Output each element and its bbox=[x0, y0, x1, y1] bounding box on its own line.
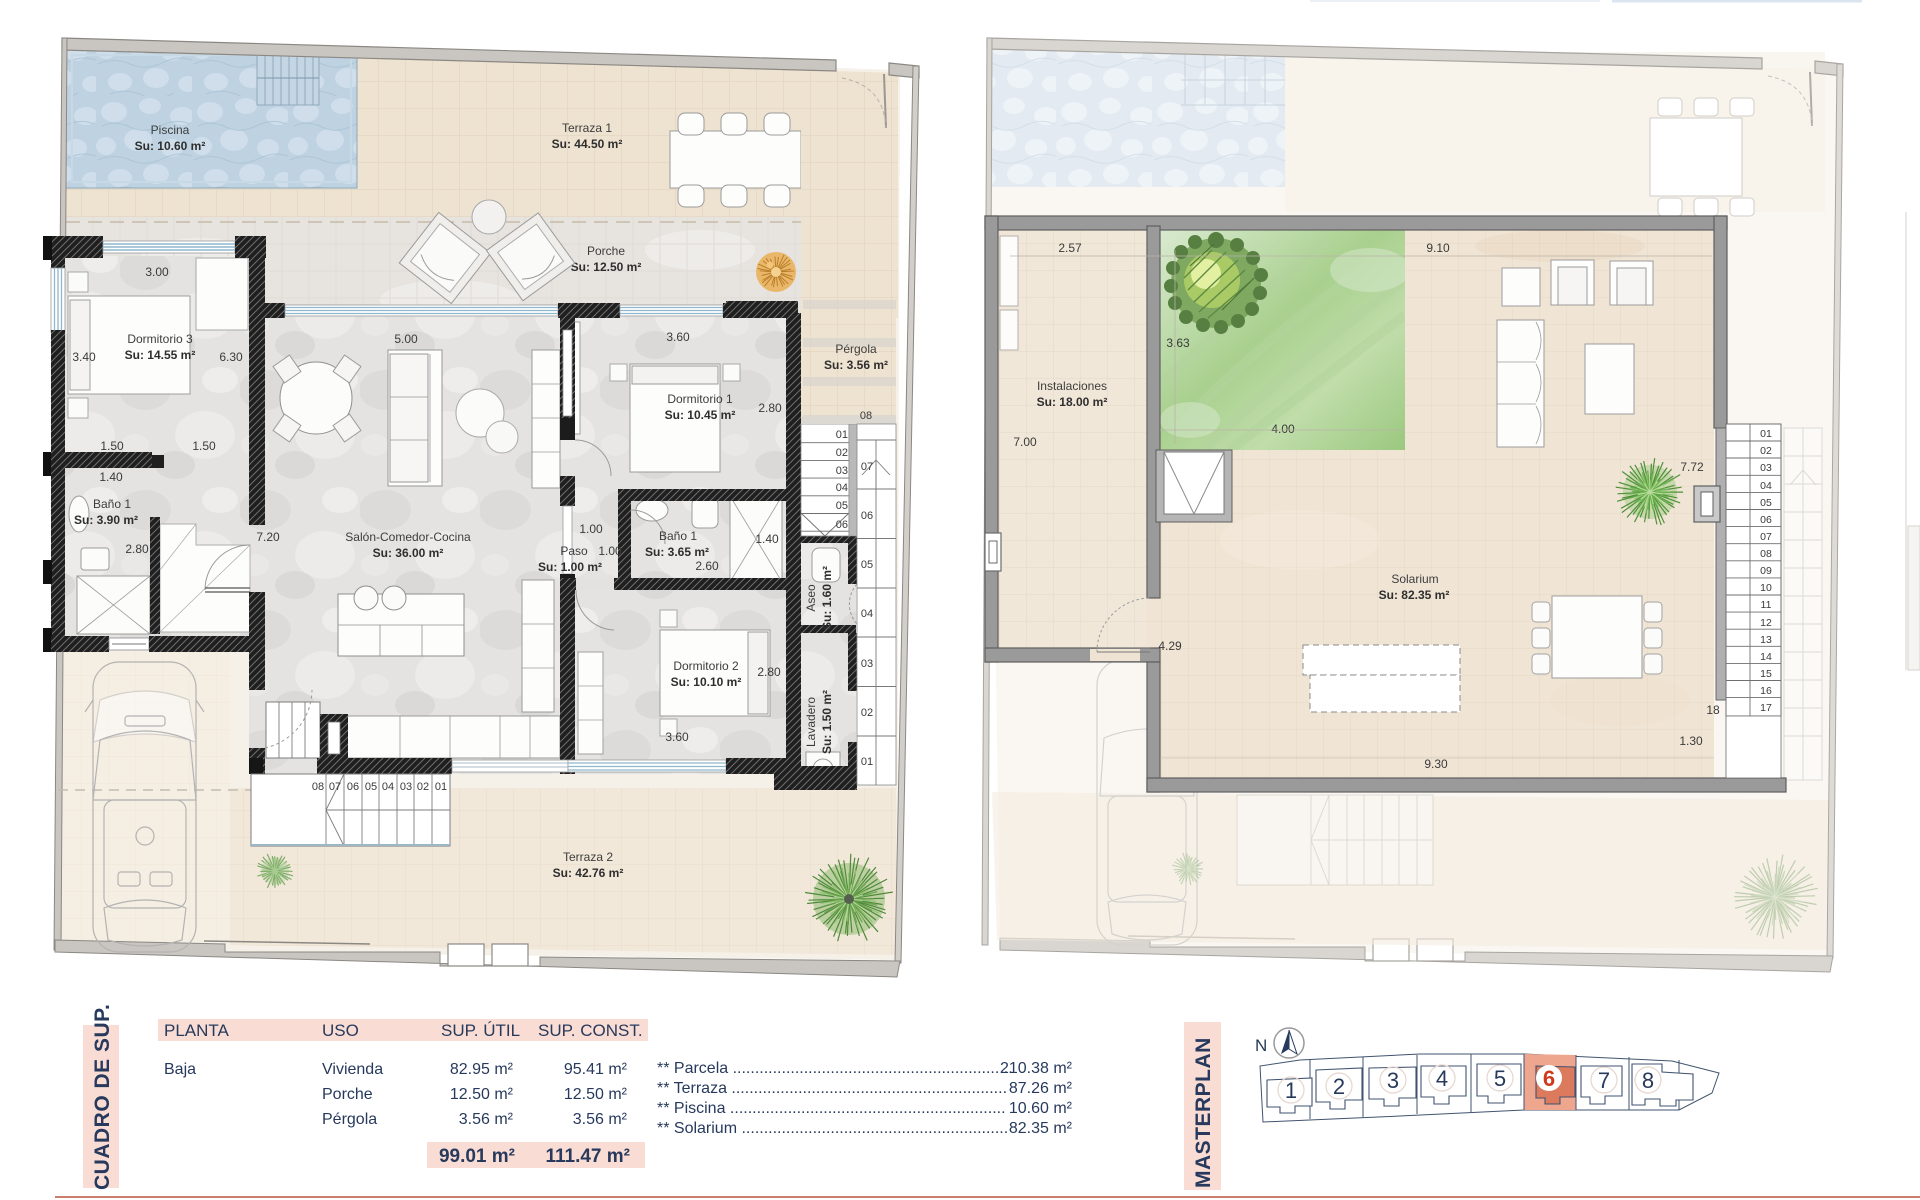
svg-text:82.35 m²: 82.35 m² bbox=[1009, 1120, 1073, 1137]
svg-text:Piscina: Piscina bbox=[151, 123, 190, 137]
svg-text:82.95 m²: 82.95 m² bbox=[450, 1061, 514, 1078]
svg-text:Salón-Comedor-Cocina: Salón-Comedor-Cocina bbox=[345, 530, 471, 544]
svg-text:1.00: 1.00 bbox=[579, 522, 603, 536]
svg-text:Pérgola: Pérgola bbox=[322, 1111, 377, 1128]
svg-text:1.00: 1.00 bbox=[598, 544, 622, 558]
svg-text:Su: 18.00 m²: Su: 18.00 m² bbox=[1037, 395, 1108, 409]
svg-text:Instalaciones: Instalaciones bbox=[1037, 379, 1107, 393]
svg-text:5: 5 bbox=[1494, 1066, 1506, 1091]
svg-text:3.60: 3.60 bbox=[666, 330, 690, 344]
svg-text:2: 2 bbox=[1333, 1074, 1345, 1099]
svg-text:7.20: 7.20 bbox=[256, 530, 280, 544]
svg-text:03: 03 bbox=[400, 781, 412, 793]
svg-text:** Solarium ..................: ** Solarium ............................… bbox=[657, 1120, 1008, 1137]
svg-text:Su: 44.50 m²: Su: 44.50 m² bbox=[552, 137, 623, 151]
svg-text:01: 01 bbox=[435, 781, 447, 793]
svg-text:3.00: 3.00 bbox=[145, 265, 169, 279]
svg-text:3.40: 3.40 bbox=[72, 350, 96, 364]
svg-text:2.80: 2.80 bbox=[757, 665, 781, 679]
svg-text:CUADRO DE SUP.: CUADRO DE SUP. bbox=[91, 1004, 114, 1190]
svg-text:05: 05 bbox=[861, 559, 873, 571]
svg-text:Terraza 1: Terraza 1 bbox=[562, 121, 612, 135]
svg-text:Su: 12.50 m²: Su: 12.50 m² bbox=[571, 260, 642, 274]
svg-text:Su: 1.60 m²: Su: 1.60 m² bbox=[820, 566, 834, 630]
svg-text:3.60: 3.60 bbox=[665, 730, 689, 744]
svg-text:Solarium: Solarium bbox=[1391, 572, 1438, 586]
svg-text:08: 08 bbox=[1760, 548, 1772, 560]
svg-text:04: 04 bbox=[861, 608, 873, 620]
svg-text:7.72: 7.72 bbox=[1680, 460, 1704, 474]
svg-text:1.40: 1.40 bbox=[99, 470, 123, 484]
svg-text:07: 07 bbox=[1760, 531, 1772, 543]
svg-text:Pérgola: Pérgola bbox=[835, 342, 877, 356]
svg-text:3.63: 3.63 bbox=[1166, 336, 1190, 350]
svg-text:Lavadero: Lavadero bbox=[804, 697, 818, 747]
svg-text:Terraza 2: Terraza 2 bbox=[563, 850, 613, 864]
svg-text:1.50: 1.50 bbox=[192, 439, 216, 453]
svg-text:** Parcela ...................: ** Parcela .............................… bbox=[657, 1060, 1013, 1077]
svg-text:Su: 42.76 m²: Su: 42.76 m² bbox=[553, 866, 624, 880]
svg-text:04: 04 bbox=[382, 781, 394, 793]
svg-text:USO: USO bbox=[322, 1021, 359, 1040]
svg-text:Su: 1.00 m²: Su: 1.00 m² bbox=[538, 560, 602, 574]
svg-text:4.29: 4.29 bbox=[1158, 639, 1182, 653]
svg-text:08: 08 bbox=[312, 781, 324, 793]
svg-text:06: 06 bbox=[861, 510, 873, 522]
svg-text:1.30: 1.30 bbox=[1679, 734, 1703, 748]
svg-text:04: 04 bbox=[1760, 480, 1772, 492]
svg-text:Su: 10.45 m²: Su: 10.45 m² bbox=[665, 408, 736, 422]
svg-text:05: 05 bbox=[836, 500, 848, 512]
svg-text:1.50: 1.50 bbox=[100, 439, 124, 453]
svg-text:02: 02 bbox=[861, 707, 873, 719]
svg-text:111.47 m²: 111.47 m² bbox=[545, 1146, 630, 1167]
svg-text:1: 1 bbox=[1285, 1078, 1297, 1103]
svg-text:Su: 10.60 m²: Su: 10.60 m² bbox=[135, 139, 206, 153]
svg-text:Dormitorio 3: Dormitorio 3 bbox=[127, 332, 193, 346]
svg-text:3: 3 bbox=[1387, 1068, 1399, 1093]
svg-text:03: 03 bbox=[861, 658, 873, 670]
svg-text:9.10: 9.10 bbox=[1426, 241, 1450, 255]
svg-text:87.26 m²: 87.26 m² bbox=[1009, 1080, 1073, 1097]
svg-text:7: 7 bbox=[1598, 1068, 1610, 1093]
svg-text:Su: 82.35 m²: Su: 82.35 m² bbox=[1379, 588, 1450, 602]
svg-text:Vivienda: Vivienda bbox=[322, 1061, 383, 1078]
svg-text:11: 11 bbox=[1761, 599, 1772, 611]
svg-text:Baño 1: Baño 1 bbox=[659, 529, 697, 543]
svg-text:01: 01 bbox=[861, 756, 873, 768]
svg-text:** Piscina ...................: ** Piscina .............................… bbox=[657, 1100, 1006, 1117]
svg-text:2.57: 2.57 bbox=[1058, 241, 1082, 255]
svg-text:5.00: 5.00 bbox=[394, 332, 418, 346]
svg-text:Porche: Porche bbox=[587, 244, 625, 258]
svg-text:06: 06 bbox=[836, 519, 848, 531]
svg-text:02: 02 bbox=[417, 781, 429, 793]
svg-text:2.60: 2.60 bbox=[695, 559, 719, 573]
svg-text:Su: 36.00 m²: Su: 36.00 m² bbox=[373, 546, 444, 560]
svg-text:SUP. ÚTIL: SUP. ÚTIL bbox=[441, 1021, 520, 1040]
svg-text:06: 06 bbox=[347, 781, 359, 793]
svg-text:05: 05 bbox=[1760, 497, 1772, 509]
svg-text:18: 18 bbox=[1706, 703, 1720, 717]
svg-text:08: 08 bbox=[860, 410, 872, 422]
svg-text:Baja: Baja bbox=[164, 1061, 196, 1078]
svg-text:Su: 10.10 m²: Su: 10.10 m² bbox=[671, 675, 742, 689]
svg-text:15: 15 bbox=[1760, 668, 1772, 680]
svg-text:03: 03 bbox=[836, 465, 848, 477]
svg-text:12.50 m²: 12.50 m² bbox=[564, 1086, 628, 1103]
svg-text:2.80: 2.80 bbox=[758, 401, 782, 415]
svg-text:3.56 m²: 3.56 m² bbox=[459, 1111, 514, 1128]
svg-text:Dormitorio 2: Dormitorio 2 bbox=[673, 659, 739, 673]
svg-text:13: 13 bbox=[1760, 634, 1772, 646]
svg-text:01: 01 bbox=[836, 429, 848, 441]
svg-text:17: 17 bbox=[1760, 702, 1772, 714]
svg-text:Aseo: Aseo bbox=[804, 584, 818, 612]
svg-text:Porche: Porche bbox=[322, 1086, 373, 1103]
svg-text:06: 06 bbox=[1760, 514, 1772, 526]
svg-text:Su: 3.65 m²: Su: 3.65 m² bbox=[645, 545, 709, 559]
svg-text:02: 02 bbox=[836, 447, 848, 459]
svg-text:6: 6 bbox=[1543, 1066, 1555, 1091]
svg-text:14: 14 bbox=[1760, 651, 1772, 663]
svg-text:Dormitorio 1: Dormitorio 1 bbox=[667, 392, 733, 406]
svg-text:MASTERPLAN: MASTERPLAN bbox=[1192, 1037, 1215, 1188]
svg-text:Su: 3.56 m²: Su: 3.56 m² bbox=[824, 358, 888, 372]
svg-text:01: 01 bbox=[1760, 428, 1772, 440]
svg-text:Su: 14.55 m²: Su: 14.55 m² bbox=[125, 348, 196, 362]
svg-text:3.56 m²: 3.56 m² bbox=[573, 1111, 628, 1128]
svg-text:N: N bbox=[1255, 1036, 1267, 1055]
svg-text:05: 05 bbox=[365, 781, 377, 793]
svg-text:07: 07 bbox=[861, 461, 873, 473]
svg-text:** Terraza ...................: ** Terraza .............................… bbox=[657, 1080, 1007, 1097]
svg-text:10.60 m²: 10.60 m² bbox=[1009, 1100, 1073, 1117]
svg-text:02: 02 bbox=[1760, 445, 1772, 457]
svg-text:4.00: 4.00 bbox=[1271, 422, 1295, 436]
svg-text:Su: 3.90 m²: Su: 3.90 m² bbox=[74, 513, 138, 527]
svg-text:03: 03 bbox=[1760, 462, 1772, 474]
svg-text:10: 10 bbox=[1760, 582, 1772, 594]
svg-text:210.38 m²: 210.38 m² bbox=[1000, 1060, 1073, 1077]
svg-text:1.40: 1.40 bbox=[755, 532, 779, 546]
svg-text:95.41 m²: 95.41 m² bbox=[564, 1061, 628, 1078]
svg-text:Paso: Paso bbox=[560, 544, 588, 558]
svg-text:SUP. CONST.: SUP. CONST. bbox=[538, 1021, 643, 1040]
svg-text:09: 09 bbox=[1760, 565, 1772, 577]
svg-text:6.30: 6.30 bbox=[219, 350, 243, 364]
svg-text:9.30: 9.30 bbox=[1424, 757, 1448, 771]
svg-text:07: 07 bbox=[329, 781, 341, 793]
svg-text:12: 12 bbox=[1760, 617, 1772, 629]
svg-text:7.00: 7.00 bbox=[1013, 435, 1037, 449]
svg-text:PLANTA: PLANTA bbox=[164, 1021, 230, 1040]
svg-text:16: 16 bbox=[1760, 685, 1772, 697]
svg-text:4: 4 bbox=[1436, 1066, 1448, 1091]
svg-text:8: 8 bbox=[1642, 1068, 1654, 1093]
svg-text:Su: 1.50 m²: Su: 1.50 m² bbox=[820, 690, 834, 754]
svg-text:99.01 m²: 99.01 m² bbox=[439, 1146, 515, 1167]
svg-text:Baño 1: Baño 1 bbox=[93, 497, 131, 511]
svg-text:12.50 m²: 12.50 m² bbox=[450, 1086, 514, 1103]
svg-text:04: 04 bbox=[836, 482, 848, 494]
svg-text:2.80: 2.80 bbox=[125, 542, 149, 556]
